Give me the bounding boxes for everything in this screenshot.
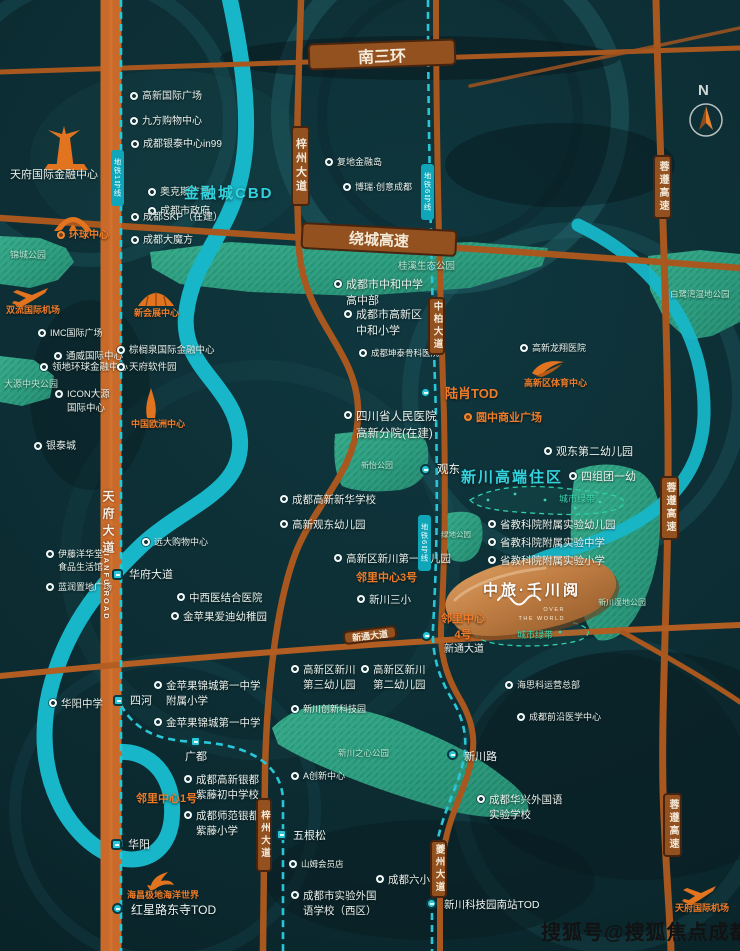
poi-label: 成都市高新区中和小学 bbox=[344, 308, 422, 340]
poi-label: 高新国际广场 bbox=[130, 90, 202, 105]
poi-bullet-icon bbox=[376, 875, 384, 883]
poi-bullet-icon bbox=[569, 472, 577, 480]
park-label: 新川湿地公园 bbox=[598, 597, 646, 608]
poi-bullet-icon bbox=[334, 280, 342, 288]
poi-bullet-icon bbox=[154, 681, 162, 689]
park-label: 绿地公园 bbox=[441, 529, 471, 540]
metro-station-marker bbox=[421, 630, 432, 641]
poi-label: 成都银泰中心in99 bbox=[131, 138, 222, 153]
road-name-text: TIANFU ROAD bbox=[102, 547, 111, 621]
labels-layer: 高新国际广场九方购物中心天府国际金融中心奥克斯广场成都市政府成都银泰中心in99… bbox=[0, 0, 740, 951]
road-name-pill: 新通大道 bbox=[342, 625, 397, 645]
park-label: 新川之心公园 bbox=[338, 747, 389, 759]
poi-bullet-icon bbox=[477, 795, 485, 803]
metro-station-marker bbox=[112, 903, 123, 914]
poi-label: 复地金融岛 bbox=[325, 156, 382, 169]
poi-bullet-icon bbox=[291, 705, 299, 713]
poi-label: 省教科院附属实验小学 bbox=[488, 554, 605, 569]
road-name-pill-vertical: 夔州大道 bbox=[430, 840, 447, 898]
poi-bullet-icon bbox=[344, 411, 352, 419]
poi-bullet-icon bbox=[343, 183, 351, 191]
metro-station-label: 五根松 bbox=[293, 827, 326, 843]
poi-label: 省教科院附属实验幼儿园 bbox=[488, 518, 616, 533]
metro-station-marker bbox=[420, 387, 431, 398]
poi-label: 四川省人民医院高新分院(在建) bbox=[344, 409, 437, 442]
poi-label: 新会展中心 bbox=[134, 307, 179, 320]
poi-label: 圆中商业广场 bbox=[464, 411, 542, 427]
park-label: 锦城公园 bbox=[10, 248, 46, 261]
poi-bullet-icon bbox=[291, 665, 299, 673]
poi-label: 博瑞·创意成都 bbox=[343, 181, 412, 194]
metro-station-label: 观东 bbox=[437, 461, 460, 477]
poi-bullet-icon bbox=[34, 442, 42, 450]
poi-label: 中西医结合医院 bbox=[177, 591, 263, 606]
poi-bullet-icon bbox=[325, 158, 333, 166]
poi-bullet-icon bbox=[184, 775, 192, 783]
poi-label: 新川创新科技园 bbox=[291, 703, 366, 716]
poi-label: 银泰城 bbox=[34, 440, 76, 455]
poi-bullet-icon bbox=[148, 188, 156, 196]
poi-label: 陆肖TOD bbox=[445, 385, 498, 404]
poi-label: A创新中心 bbox=[291, 770, 345, 783]
poi-label: 天府国际机场 bbox=[675, 902, 729, 915]
poi-bullet-icon bbox=[38, 329, 46, 337]
metro-station-label: 华府大道 bbox=[129, 566, 173, 582]
poi-bullet-icon bbox=[184, 811, 192, 819]
metro-station-label: 华阳 bbox=[128, 836, 150, 852]
park-label: 城市绿带 bbox=[559, 492, 595, 505]
poi-bullet-icon bbox=[117, 363, 125, 371]
road-name-pill: 南三环 bbox=[308, 38, 457, 70]
metro-line-pill: 地铁1号线 bbox=[111, 150, 124, 206]
real-estate-location-map: N 中旅·千川阅 OVERTHE WORLD 搜狐号@搜狐焦点成都站 高新国际广… bbox=[0, 0, 740, 951]
metro-line-pill: 地铁6号线 bbox=[418, 515, 431, 571]
metro-station-marker bbox=[420, 464, 431, 475]
poi-bullet-icon bbox=[289, 860, 297, 868]
poi-label: 棕榈泉国际金融中心 bbox=[117, 344, 215, 358]
poi-bullet-icon bbox=[544, 447, 552, 455]
road-name-pill-vertical: 蓉遵高速 bbox=[653, 155, 672, 219]
metro-station-marker bbox=[111, 839, 122, 850]
park-label: 桂溪生态公园 bbox=[398, 258, 455, 272]
poi-label: 天府国际金融中心 bbox=[10, 168, 98, 184]
poi-bullet-icon bbox=[291, 891, 299, 899]
poi-label: 成都六小 bbox=[376, 873, 430, 888]
area-label: 新川高端住区 bbox=[461, 466, 563, 487]
poi-bullet-icon bbox=[334, 554, 342, 562]
poi-bullet-icon bbox=[361, 665, 369, 673]
poi-label: IMC国际广场 bbox=[38, 327, 103, 340]
road-name-pill-vertical: 中柏大道 bbox=[428, 297, 445, 355]
poi-label: 高新区体育中心 bbox=[524, 377, 587, 390]
poi-label: 海思科运营总部 bbox=[505, 679, 580, 692]
poi-label: 观东第二幼儿园 bbox=[544, 445, 633, 461]
poi-label: 高新区新川第三幼儿园 bbox=[291, 663, 356, 693]
poi-bullet-icon bbox=[488, 538, 496, 546]
metro-station-marker bbox=[113, 695, 124, 706]
poi-bullet-icon bbox=[357, 595, 365, 603]
park-label: 白鹭湾湿地公园 bbox=[670, 288, 730, 300]
poi-bullet-icon bbox=[520, 344, 528, 352]
poi-bullet-icon bbox=[154, 718, 162, 726]
metro-station-label: 广都 bbox=[185, 748, 207, 764]
poi-label: 金苹果锦城第一中学 bbox=[154, 716, 261, 731]
poi-label: 成都坤泰骨科医院 bbox=[359, 347, 439, 359]
poi-bullet-icon bbox=[40, 363, 48, 371]
park-label: 城市绿带 bbox=[517, 628, 553, 641]
road-name-pill-vertical: 梓州大道 bbox=[256, 798, 272, 872]
road-name-pill-vertical: 梓州大道 bbox=[291, 126, 310, 206]
road-name-pill: 绕城高速 bbox=[300, 222, 457, 257]
poi-label: ICON大源国际中心 bbox=[55, 388, 110, 416]
poi-bullet-icon bbox=[131, 213, 139, 221]
poi-bullet-icon bbox=[130, 117, 138, 125]
poi-label: 九方购物中心 bbox=[130, 115, 202, 130]
poi-bullet-icon bbox=[117, 346, 125, 354]
poi-bullet-icon bbox=[280, 520, 288, 528]
poi-bullet-icon bbox=[280, 495, 288, 503]
metro-station-marker bbox=[447, 749, 458, 760]
poi-label: 高新区新川第二幼儿园 bbox=[361, 663, 426, 693]
poi-label: 高新区新川第一幼儿园 bbox=[334, 552, 451, 567]
poi-label: 金苹果锦城第一中学附属小学 bbox=[154, 679, 261, 709]
poi-bullet-icon bbox=[55, 390, 63, 398]
poi-label: 省教科院附属实验中学 bbox=[488, 536, 605, 551]
poi-bullet-icon bbox=[131, 236, 139, 244]
metro-station-label: 新川路 bbox=[464, 748, 497, 764]
metro-station-marker bbox=[276, 829, 287, 840]
poi-label: 成都高新新华学校 bbox=[280, 493, 376, 508]
poi-label: 领地环球金融中心 bbox=[40, 361, 128, 375]
metro-station-label: 四河 bbox=[130, 692, 152, 708]
poi-bullet-icon bbox=[54, 352, 62, 360]
road-name-pill-vertical: 蓉遵高速 bbox=[663, 793, 682, 857]
poi-bullet-icon bbox=[130, 92, 138, 100]
poi-label: 四组团一幼 bbox=[569, 470, 636, 486]
poi-bullet-icon bbox=[46, 550, 54, 558]
poi-bullet-icon bbox=[488, 556, 496, 564]
poi-bullet-icon bbox=[517, 713, 525, 721]
poi-label: 新川三小 bbox=[357, 593, 411, 608]
poi-bullet-icon bbox=[57, 231, 65, 239]
poi-label: 高新观东幼儿园 bbox=[280, 518, 366, 533]
poi-label: 山姆会员店 bbox=[289, 858, 344, 870]
poi-label: 邻里中心1号 bbox=[136, 792, 197, 808]
poi-bullet-icon bbox=[505, 681, 513, 689]
poi-bullet-icon bbox=[177, 593, 185, 601]
poi-bullet-icon bbox=[291, 772, 299, 780]
poi-label: 成都市中和中学高中部 bbox=[334, 278, 423, 310]
poi-label: 邻里中心3号 bbox=[356, 571, 417, 587]
poi-bullet-icon bbox=[359, 349, 367, 357]
poi-label: 成都大魔方 bbox=[131, 234, 193, 249]
metro-station-label: 红星路东寺TOD bbox=[131, 901, 216, 918]
poi-label: 环球中心 bbox=[57, 229, 109, 244]
poi-bullet-icon bbox=[171, 612, 179, 620]
metro-line-pill: 地铁6号线 bbox=[421, 164, 434, 220]
poi-bullet-icon bbox=[464, 413, 472, 421]
poi-label: 成都SKP（在建） bbox=[131, 211, 223, 226]
poi-label: 成都华兴外国语实验学校 bbox=[477, 793, 563, 823]
poi-label: 成都前沿医学中心 bbox=[517, 711, 601, 724]
poi-bullet-icon bbox=[488, 520, 496, 528]
metro-station-label: 新川科技园南站TOD bbox=[444, 897, 539, 912]
poi-label: 中国欧洲中心 bbox=[131, 418, 185, 431]
poi-label: 华阳中学 bbox=[49, 697, 103, 712]
poi-label: 天府软件园 bbox=[117, 361, 177, 375]
poi-label: 双流国际机场 bbox=[6, 304, 60, 317]
area-label: 金融城CBD bbox=[184, 182, 274, 203]
metro-station-marker bbox=[426, 898, 437, 909]
poi-label: 成都市实验外国语学校（西区） bbox=[291, 889, 377, 919]
poi-bullet-icon bbox=[46, 583, 54, 591]
poi-bullet-icon bbox=[131, 140, 139, 148]
poi-label: 成都师范银都紫藤小学 bbox=[184, 809, 259, 839]
metro-station-marker bbox=[112, 569, 123, 580]
poi-label: 金苹果爱迪幼稚园 bbox=[171, 610, 267, 625]
road-name-pill-vertical: 蓉遵高速 bbox=[660, 476, 679, 540]
poi-label: 高新龙翔医院 bbox=[520, 342, 586, 355]
poi-bullet-icon bbox=[344, 310, 352, 318]
poi-bullet-icon bbox=[49, 699, 57, 707]
park-label: 新怡公园 bbox=[361, 460, 393, 471]
poi-label: 伊藤洋华堂食品生活馆 bbox=[46, 548, 103, 574]
metro-station-label: 新通大道 bbox=[444, 640, 484, 655]
metro-station-marker bbox=[190, 736, 201, 747]
poi-label: 远大购物中心 bbox=[142, 536, 208, 549]
poi-bullet-icon bbox=[142, 538, 150, 546]
park-label: 大源中央公园 bbox=[4, 377, 58, 390]
